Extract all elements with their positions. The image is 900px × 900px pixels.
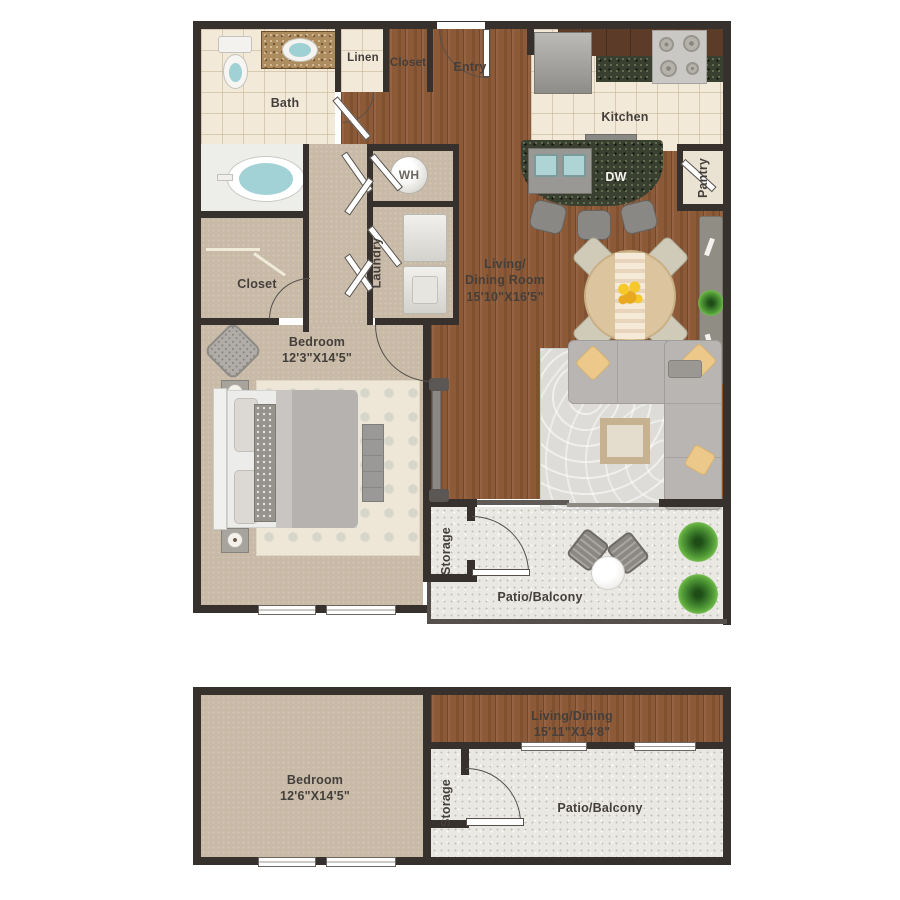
wall (193, 211, 309, 218)
wall (677, 204, 731, 211)
bed-blanket (276, 390, 358, 528)
patio-edge (427, 619, 727, 624)
wall (193, 21, 201, 613)
closet-shelf-line (206, 248, 260, 251)
wall (527, 21, 534, 55)
room-label-laundry-text: Laundry (369, 238, 383, 289)
room-label-bedroom2: Bedroom 12'6"X14'5" (250, 772, 380, 805)
wall (677, 144, 731, 151)
bedroom2-window (326, 857, 396, 867)
room-label-entry: Entry (438, 59, 502, 75)
wall (373, 201, 453, 207)
media-speaker (429, 378, 449, 391)
island-sink-basin (562, 154, 586, 177)
sliding-door-opening (521, 742, 587, 751)
flower-centerpiece (614, 278, 646, 310)
bedroom-label-name: Bedroom (252, 334, 382, 350)
room-label-patio: Patio/Balcony (478, 589, 602, 605)
living-label-line1: Living/ (443, 256, 567, 272)
bar-stool (577, 210, 611, 240)
media-speaker (429, 489, 449, 502)
room-label-patio2: Patio/Balcony (538, 800, 662, 816)
room-label-living-dining2: Living/Dining 15'11"X14'8" (510, 708, 634, 741)
bathtub-water (239, 163, 293, 195)
bathtub-faucet (217, 174, 233, 181)
sliding-door-panel (567, 503, 659, 507)
living2-label-dims: 15'11"X14'8" (510, 724, 634, 740)
label-dishwasher: DW (598, 169, 634, 185)
storage2-door-leaf (466, 818, 524, 826)
bed-accent-pillow (254, 404, 276, 522)
room-label-kitchen: Kitchen (583, 109, 667, 125)
wall (367, 144, 459, 151)
room-label-laundry: Laundry (358, 232, 394, 294)
room-label-storage2-text: Storage (439, 779, 453, 827)
bedroom2-label-dims: 12'6"X14'5" (250, 788, 380, 804)
room-label-bedroom: Bedroom 12'3"X14'5" (252, 334, 382, 367)
table-lamp (227, 532, 243, 548)
sliding-door-panel (477, 500, 569, 505)
stove-burner (660, 60, 677, 77)
patio-plant (678, 574, 718, 614)
coffee-table (600, 418, 650, 464)
stove-burner (683, 35, 700, 52)
floor-plan-upper: Bath Linen Closet Entry Kitchen Pantry D… (0, 0, 900, 660)
storage-door-leaf (472, 569, 530, 576)
living2-label-name: Living/Dining (510, 708, 634, 724)
bedroom2-window (258, 857, 316, 867)
island-sink-basin (534, 154, 558, 177)
toilet-tank (218, 36, 252, 53)
bed-bench (362, 424, 384, 502)
stove-burner (686, 62, 699, 75)
room-label-bath: Bath (250, 95, 320, 111)
room-label-storage: Storage (427, 520, 465, 582)
room-label-storage2: Storage (427, 772, 465, 834)
bedroom-window (258, 605, 316, 615)
vanity-sink-water (289, 43, 311, 57)
room-label-living-dining: Living/ Dining Room 15'10"X16'5" (443, 256, 567, 305)
wall (193, 687, 201, 865)
wall (659, 499, 723, 507)
bedroom-label-dims: 12'3"X14'5" (252, 350, 382, 366)
refrigerator (534, 32, 592, 94)
wall (193, 687, 731, 695)
room-label-entry-closet: Closet (381, 56, 435, 71)
dryer-door (412, 276, 438, 304)
bedroom2-label-name: Bedroom (250, 772, 380, 788)
media-console (432, 386, 441, 494)
patio-plant (678, 522, 718, 562)
sofa-lumbar-pillow (668, 360, 702, 378)
room-label-walkin-closet: Closet (222, 276, 292, 292)
patio-table (591, 556, 625, 590)
wall (375, 318, 459, 325)
sliding-door-opening (634, 742, 696, 751)
patio-edge (427, 582, 431, 624)
stove-burner (659, 37, 674, 52)
floor-plan-lower: Bedroom 12'6"X14'5" Living/Dining 15'11"… (0, 660, 900, 900)
living-label-line2: Dining Room (443, 272, 567, 288)
wall (723, 21, 731, 625)
label-water-heater: WH (390, 168, 428, 184)
room-label-pantry-text: Pantry (696, 158, 710, 198)
room-label-storage-text: Storage (439, 527, 453, 575)
entry-door-opening (437, 22, 485, 29)
toilet-water (229, 63, 242, 82)
washer (403, 214, 447, 262)
wall (193, 318, 279, 325)
wall (723, 687, 731, 865)
console-plant (698, 290, 724, 316)
room-label-pantry: Pantry (683, 154, 723, 202)
bedroom-window (326, 605, 396, 615)
living-label-dims: 15'10"X16'5" (443, 289, 567, 305)
bed-headboard (213, 388, 227, 530)
